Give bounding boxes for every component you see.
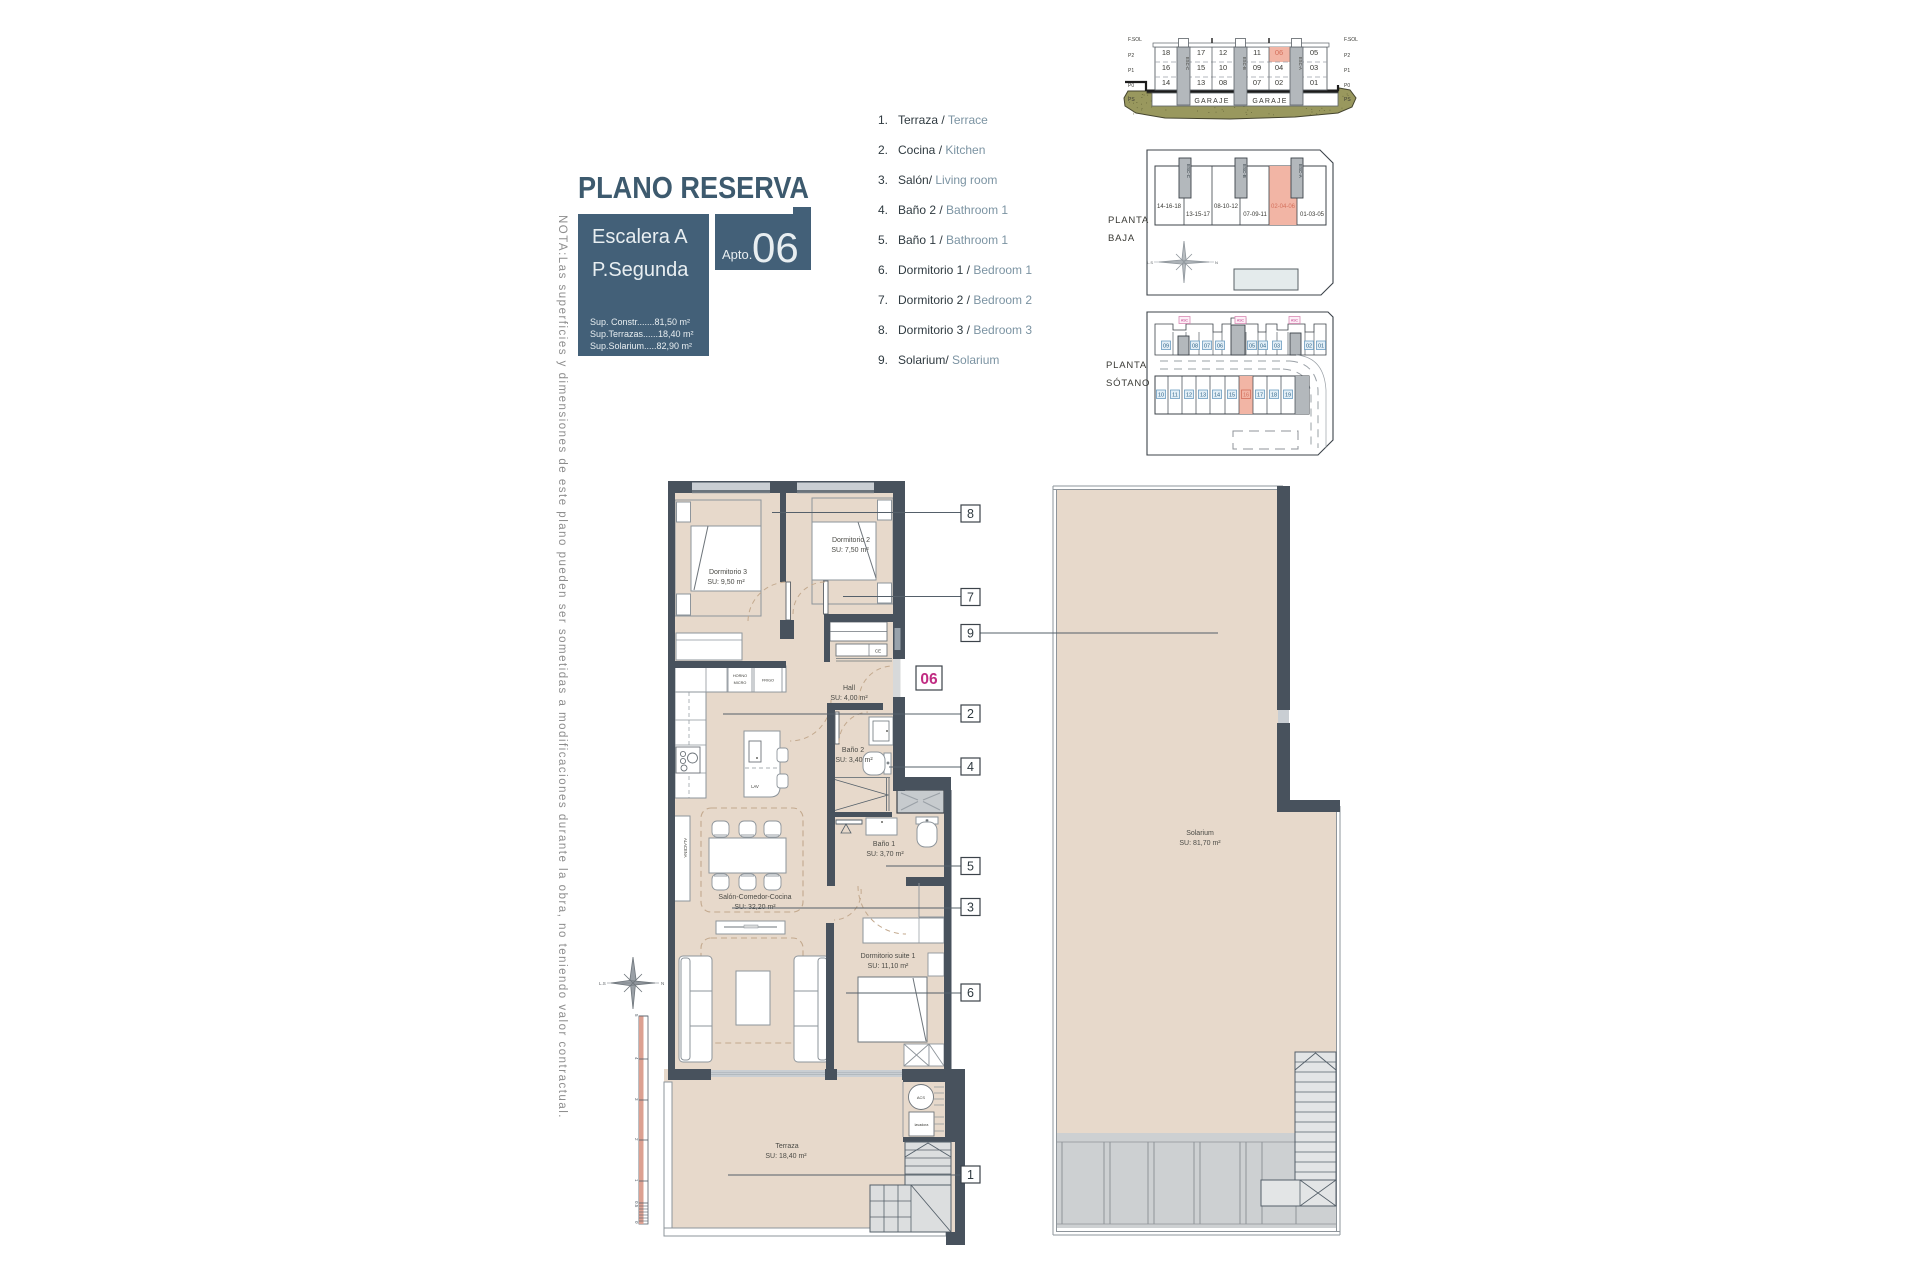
- svg-text:P2: P2: [1128, 53, 1134, 59]
- svg-text:1: 1: [967, 1168, 974, 1182]
- svg-text:GARAJE: GARAJE: [1252, 98, 1287, 105]
- svg-text:14: 14: [1162, 78, 1170, 87]
- svg-text:PLANO RESERVA: PLANO RESERVA: [578, 170, 809, 205]
- svg-text:4: 4: [967, 760, 974, 774]
- svg-text:CE: CE: [875, 649, 881, 654]
- svg-text:16: 16: [1162, 63, 1170, 72]
- svg-text:06: 06: [752, 224, 799, 271]
- svg-text:HORNO: HORNO: [733, 674, 747, 678]
- svg-text:15: 15: [1229, 393, 1235, 399]
- svg-text:L.S: L.S: [599, 981, 606, 986]
- svg-text:lavadora: lavadora: [915, 1123, 929, 1127]
- svg-text:11: 11: [1253, 48, 1261, 57]
- svg-text:8.: 8.: [878, 323, 888, 337]
- svg-text:SÓTANO: SÓTANO: [1106, 378, 1150, 389]
- svg-text:Sup.Solarium.....82,90 m²: Sup.Solarium.....82,90 m²: [590, 341, 692, 351]
- svg-text:BAJA: BAJA: [1108, 233, 1135, 244]
- svg-text:04: 04: [1275, 63, 1283, 72]
- svg-text:16: 16: [1243, 393, 1249, 399]
- svg-text:6.: 6.: [878, 263, 888, 277]
- svg-text:SU: 81,70 m²: SU: 81,70 m²: [1179, 840, 1221, 847]
- svg-text:8: 8: [967, 507, 974, 521]
- svg-text:P1: P1: [1128, 68, 1134, 74]
- svg-text:SU: 9,50 m²: SU: 9,50 m²: [707, 579, 745, 586]
- svg-text:Solarium/ Solarium: Solarium/ Solarium: [898, 353, 999, 367]
- svg-text:04: 04: [1260, 344, 1266, 350]
- svg-text:Dormitorio 3: Dormitorio 3: [709, 569, 747, 576]
- svg-text:P2: P2: [1344, 53, 1350, 59]
- svg-text:Dormitorio 3 / Bedroom 3: Dormitorio 3 / Bedroom 3: [898, 323, 1032, 337]
- svg-text:ESC-B: ESC-B: [1242, 57, 1247, 70]
- svg-text:ALACENA: ALACENA: [683, 838, 688, 858]
- svg-text:11: 11: [1172, 393, 1178, 399]
- svg-text:Escalera A: Escalera A: [592, 226, 688, 248]
- svg-text:SU: 3,40 m²: SU: 3,40 m²: [835, 757, 873, 764]
- svg-text:02-04-06: 02-04-06: [1271, 204, 1296, 210]
- svg-text:10: 10: [1158, 393, 1164, 399]
- svg-text:SU: 4,00 m²: SU: 4,00 m²: [830, 695, 868, 702]
- svg-text:18: 18: [1162, 48, 1170, 57]
- svg-text:Sup.Terrazas......18,40 m²: Sup.Terrazas......18,40 m²: [590, 329, 694, 339]
- svg-text:Baño 1: Baño 1: [873, 841, 895, 848]
- svg-text:09: 09: [1163, 344, 1169, 350]
- svg-text:06: 06: [1275, 48, 1283, 57]
- svg-text:Sup. Constr.......81,50 m²: Sup. Constr.......81,50 m²: [590, 317, 690, 327]
- svg-text:17: 17: [1257, 393, 1263, 399]
- svg-text:4.: 4.: [878, 203, 888, 217]
- svg-text:05: 05: [1249, 344, 1255, 350]
- svg-text:P1: P1: [1344, 68, 1350, 74]
- svg-text:2.: 2.: [878, 143, 888, 157]
- svg-text:P0: P0: [1344, 83, 1350, 89]
- svg-text:7: 7: [967, 591, 974, 605]
- svg-text:1.: 1.: [878, 113, 888, 127]
- svg-text:08: 08: [1219, 78, 1227, 87]
- svg-text:03: 03: [1310, 63, 1318, 72]
- svg-text:10: 10: [1219, 63, 1227, 72]
- svg-text:ESC-A: ESC-A: [1298, 57, 1303, 70]
- svg-text:03: 03: [1274, 344, 1280, 350]
- svg-text:6: 6: [967, 986, 974, 1000]
- svg-text:P0: P0: [1128, 83, 1134, 89]
- svg-text:Dormitorio 2 / Bedroom 2: Dormitorio 2 / Bedroom 2: [898, 293, 1032, 307]
- svg-text:01: 01: [1310, 78, 1318, 87]
- svg-text:01: 01: [1318, 344, 1324, 350]
- svg-text:LAV: LAV: [751, 784, 759, 789]
- svg-text:PLANTA: PLANTA: [1108, 215, 1149, 226]
- svg-text:Baño 2: Baño 2: [842, 747, 864, 754]
- svg-text:SU: 3,70 m²: SU: 3,70 m²: [866, 851, 904, 858]
- svg-text:7.: 7.: [878, 293, 888, 307]
- svg-text:Apto.: Apto.: [722, 247, 752, 262]
- svg-text:5.: 5.: [878, 233, 888, 247]
- svg-text:08: 08: [1192, 344, 1198, 350]
- svg-text:02: 02: [1275, 78, 1283, 87]
- svg-text:3: 3: [967, 901, 974, 915]
- svg-text:13: 13: [1200, 393, 1206, 399]
- svg-text:PS: PS: [1128, 97, 1135, 103]
- svg-text:5: 5: [967, 860, 974, 874]
- svg-text:F.SOL: F.SOL: [1344, 37, 1358, 43]
- svg-text:13: 13: [1197, 78, 1205, 87]
- svg-text:17: 17: [1197, 48, 1205, 57]
- svg-text:ACS: ACS: [917, 1095, 926, 1100]
- svg-text:07: 07: [1253, 78, 1261, 87]
- svg-text:SU: 7,50 m²: SU: 7,50 m²: [831, 547, 869, 554]
- svg-text:9: 9: [967, 627, 974, 641]
- svg-text:Salón/ Living room: Salón/ Living room: [898, 173, 997, 187]
- svg-text:Baño 2 / Bathroom 1: Baño 2 / Bathroom 1: [898, 203, 1008, 217]
- svg-text:MICRO: MICRO: [734, 681, 747, 685]
- svg-text:05: 05: [1310, 48, 1318, 57]
- svg-text:ASC: ASC: [1237, 319, 1245, 323]
- svg-text:PS: PS: [1344, 97, 1351, 103]
- svg-text:07-09-11: 07-09-11: [1243, 212, 1267, 218]
- svg-text:ESC-C: ESC-C: [1185, 57, 1190, 70]
- svg-text:14: 14: [1214, 393, 1220, 399]
- svg-text:L.S: L.S: [1147, 260, 1153, 265]
- svg-text:06: 06: [1217, 344, 1223, 350]
- svg-text:01-03-05: 01-03-05: [1300, 212, 1325, 218]
- svg-text:Terraza / Terrace: Terraza / Terrace: [898, 113, 988, 127]
- svg-text:GARAJE: GARAJE: [1194, 98, 1229, 105]
- svg-text:Solarium: Solarium: [1186, 830, 1214, 837]
- svg-text:Hall: Hall: [843, 685, 856, 692]
- svg-text:13-15-17: 13-15-17: [1186, 212, 1211, 218]
- svg-text:9.: 9.: [878, 353, 888, 367]
- svg-text:14-16-18: 14-16-18: [1157, 204, 1182, 210]
- svg-text:0.5: 0.5: [634, 1201, 639, 1208]
- svg-text:Dormitorio 2: Dormitorio 2: [832, 537, 870, 544]
- svg-text:ESC-B: ESC-B: [1242, 164, 1247, 178]
- svg-text:19: 19: [1285, 393, 1291, 399]
- svg-text:Salón-Comedor-Cocina: Salón-Comedor-Cocina: [718, 894, 791, 901]
- svg-text:ESC-C: ESC-C: [1186, 164, 1191, 179]
- svg-text:06: 06: [920, 671, 938, 688]
- svg-text:08-10-12: 08-10-12: [1214, 204, 1239, 210]
- svg-text:09: 09: [1253, 63, 1261, 72]
- svg-text:15: 15: [1197, 63, 1205, 72]
- svg-text:02: 02: [1306, 344, 1312, 350]
- svg-text:ESC-A: ESC-A: [1298, 164, 1303, 178]
- svg-text:SU: 11,10 m²: SU: 11,10 m²: [868, 963, 909, 970]
- svg-text:12: 12: [1219, 48, 1227, 57]
- svg-text:12: 12: [1186, 393, 1192, 399]
- svg-text:07: 07: [1204, 344, 1210, 350]
- svg-text:FRIGO: FRIGO: [762, 679, 774, 683]
- svg-text:N: N: [661, 981, 664, 986]
- svg-text:Dormitorio 1 / Bedroom 1: Dormitorio 1 / Bedroom 1: [898, 263, 1032, 277]
- svg-text:N: N: [1215, 260, 1218, 265]
- svg-text:2: 2: [967, 707, 974, 721]
- svg-text:Dormitorio suite 1: Dormitorio suite 1: [861, 953, 916, 960]
- svg-text:ASC: ASC: [1181, 319, 1189, 323]
- svg-text:PLANTA: PLANTA: [1106, 360, 1147, 371]
- svg-text:Cocina / Kitchen: Cocina / Kitchen: [898, 143, 985, 157]
- svg-text:SU: 18,40 m²: SU: 18,40 m²: [765, 1153, 807, 1160]
- svg-text:ASC: ASC: [1291, 319, 1299, 323]
- svg-text:F.SOL: F.SOL: [1128, 37, 1142, 43]
- svg-text:3.: 3.: [878, 173, 888, 187]
- svg-text:Terraza: Terraza: [775, 1143, 798, 1150]
- svg-text:Baño 1 / Bathroom 1: Baño 1 / Bathroom 1: [898, 233, 1008, 247]
- svg-text:P.Segunda: P.Segunda: [592, 259, 689, 281]
- svg-text:NOTA:Las superficies y dimensi: NOTA:Las superficies y dimensiones de es…: [556, 215, 568, 1119]
- svg-text:18: 18: [1271, 393, 1277, 399]
